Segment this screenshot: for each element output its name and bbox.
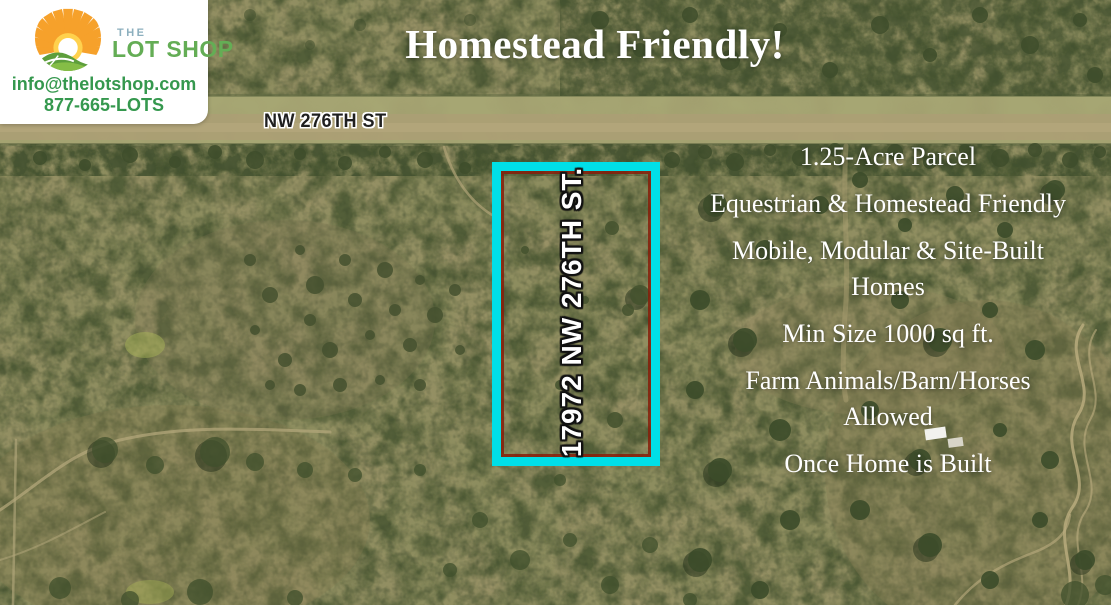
contact-email: info@thelotshop.com xyxy=(0,74,208,95)
listing-flyer: THE LOT SHOP info@thelotshop.com 877-665… xyxy=(0,0,1111,605)
parcel-address-label: 17972 NW 276TH ST. xyxy=(552,152,592,472)
feature-home-types: Mobile, Modular & Site-Built Homes xyxy=(703,233,1073,305)
sun-over-hills-icon xyxy=(33,3,103,73)
feature-min-size: Min Size 1000 sq ft. xyxy=(703,316,1073,352)
street-label: NW 276TH ST xyxy=(264,111,387,133)
contact-phone: 877-665-LOTS xyxy=(0,95,208,116)
feature-equestrian: Equestrian & Homestead Friendly xyxy=(703,186,1073,222)
brand-name: LOT SHOP xyxy=(112,36,234,63)
features-list: 1.25-Acre Parcel Equestrian & Homestead … xyxy=(703,139,1073,482)
contact-block: info@thelotshop.com 877-665-LOTS xyxy=(0,74,208,116)
headline: Homestead Friendly! xyxy=(330,20,860,68)
feature-once-built: Once Home is Built xyxy=(703,446,1073,482)
feature-acreage: 1.25-Acre Parcel xyxy=(703,139,1073,175)
feature-farm-animals: Farm Animals/Barn/Horses Allowed xyxy=(703,363,1073,435)
lot-shop-logo-card: THE LOT SHOP info@thelotshop.com 877-665… xyxy=(0,0,208,124)
logo-row: THE LOT SHOP xyxy=(0,0,208,70)
